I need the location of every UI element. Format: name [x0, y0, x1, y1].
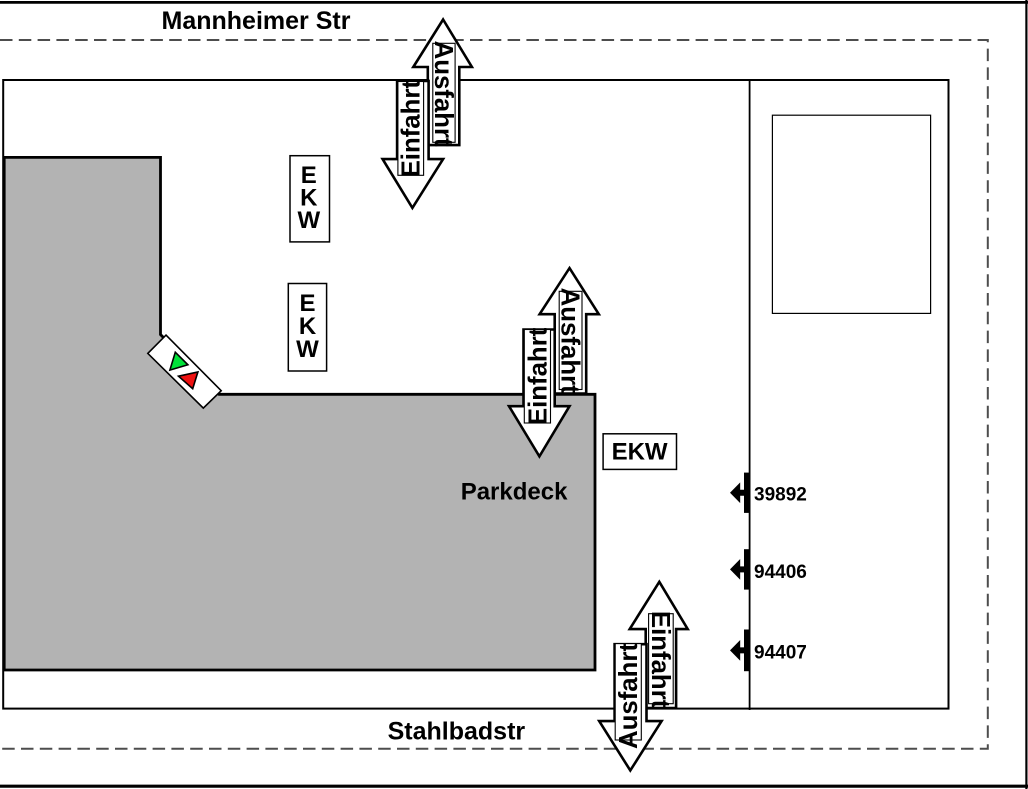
svg-text:94407: 94407	[754, 643, 807, 664]
svg-text:Parkdeck: Parkdeck	[461, 479, 568, 506]
svg-text:39892: 39892	[754, 484, 807, 505]
svg-text:Mannheimer Str: Mannheimer Str	[162, 7, 351, 35]
svg-text:Ausfahrt: Ausfahrt	[615, 643, 643, 749]
svg-text:94406: 94406	[754, 562, 807, 583]
svg-text:W: W	[296, 336, 319, 363]
svg-text:W: W	[297, 207, 320, 234]
svg-text:Ausfahrt: Ausfahrt	[429, 41, 457, 147]
svg-text:EKW: EKW	[612, 438, 668, 465]
svg-text:Stahlbadstr: Stahlbadstr	[388, 718, 526, 746]
svg-text:Ausfahrt: Ausfahrt	[556, 288, 584, 394]
svg-text:Einfahrt: Einfahrt	[524, 327, 552, 425]
svg-text:Einfahrt: Einfahrt	[398, 80, 426, 178]
svg-text:Einfahrt: Einfahrt	[646, 611, 674, 709]
